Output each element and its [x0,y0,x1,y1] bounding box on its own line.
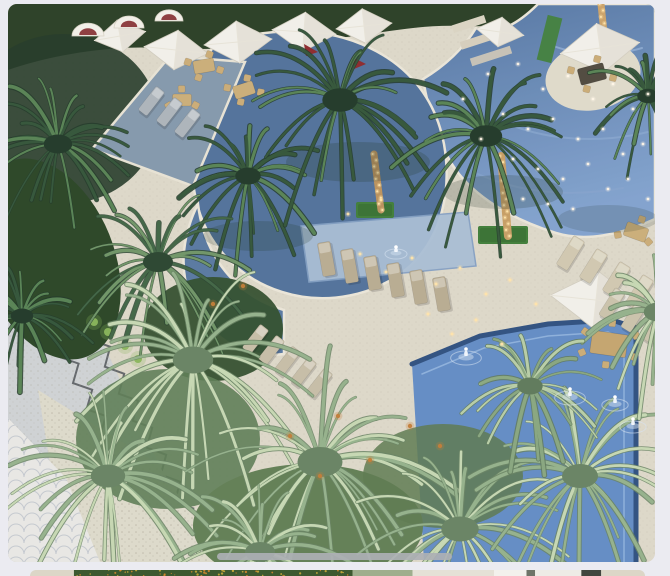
next-photo-peek[interactable] [30,570,645,576]
photo-feed [0,0,670,576]
horizontal-scrollbar-thumb[interactable] [217,553,452,560]
building-wall-segment [494,570,527,576]
haze [8,4,655,562]
building-wall-segment [535,570,581,576]
hedge-with-flowers [74,570,353,576]
building-wall-segment [413,570,494,576]
main-photo[interactable] [8,4,655,562]
next-photo-top-edge [30,570,645,576]
building-wall-segment [581,570,601,576]
building-wall-segment [527,570,536,576]
building-wall-segment [353,570,413,576]
resort-pool-rendering [8,4,655,562]
